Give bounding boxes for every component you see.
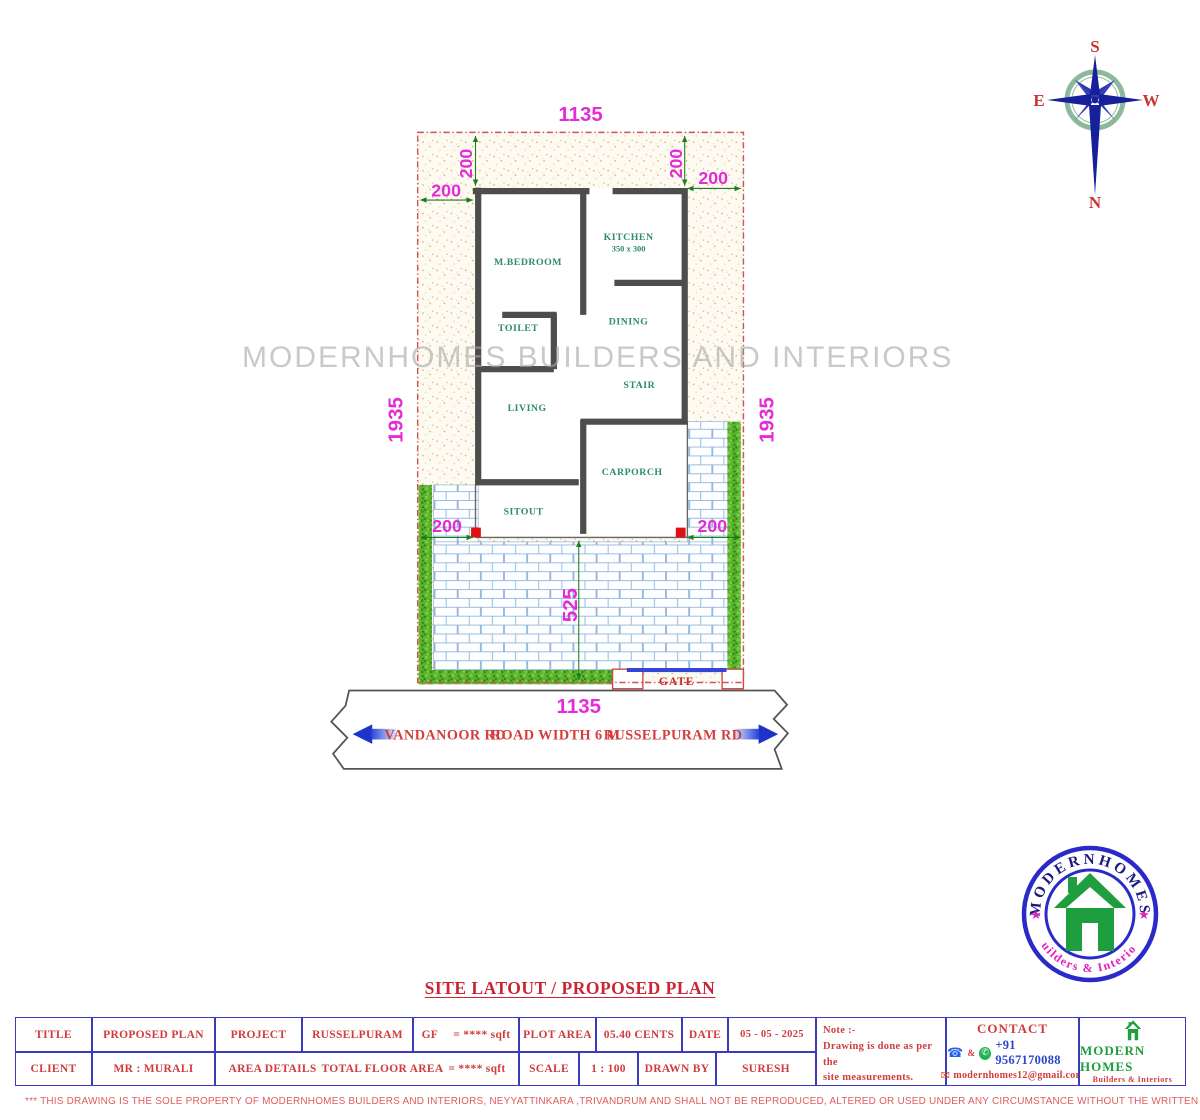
room-label-kitchen-size: 350 x 300	[612, 244, 646, 254]
cell-project-value: RUSSELPURAM	[302, 1017, 413, 1052]
total-floor-value: = **** sqft	[448, 1063, 505, 1075]
compass-north-label: N	[1089, 193, 1102, 210]
dim-setback-bl: 200	[432, 516, 462, 536]
cell-client-value: MR : MURALI	[92, 1052, 215, 1086]
cell-scale-value: 1 : 100	[579, 1052, 638, 1086]
brand-tagline: Builders & Interiors	[1093, 1075, 1173, 1084]
brand-name: MODERN HOMES	[1080, 1043, 1185, 1075]
dim-setback-br: 200	[697, 516, 727, 536]
email-icon: ✉	[941, 1069, 951, 1082]
room-label-sitout: SITOUT	[504, 506, 544, 517]
room-label-mbedroom: M.BEDROOM	[494, 257, 562, 268]
cell-area-details: AREA DETAILS TOTAL FLOOR AREA = **** sqf…	[215, 1052, 519, 1086]
whatsapp-icon: ✆	[979, 1047, 991, 1060]
road-name-left: VANDANOOR RD	[384, 727, 506, 743]
cell-plot-area-label: PLOT AREA	[519, 1017, 596, 1052]
note-line1: Drawing is done as per the	[823, 1039, 939, 1071]
phone-icon: ☎	[947, 1046, 964, 1061]
gate-post-right	[722, 669, 743, 689]
compass-west-label: W	[1143, 91, 1160, 110]
dim-front-depth: 525	[559, 588, 582, 622]
dim-setback-tl-h: 200	[431, 180, 461, 200]
dim-setback-tr-v: 200	[666, 149, 686, 179]
site-plan-drawing: GATE 1135 200 200 200 200 1935 1935 200 …	[300, 95, 870, 865]
cell-title-label: TITLE	[15, 1017, 92, 1052]
road-band: 1135 VANDANOOR RD ROAD WIDTH 6 M RUSSELP…	[331, 691, 788, 769]
cell-date-value: 05 - 05 - 2025	[728, 1017, 816, 1052]
gf-label: GF	[422, 1029, 439, 1041]
cell-title-value: PROPOSED PLAN	[92, 1017, 215, 1052]
dim-top-width: 1135	[558, 103, 602, 126]
drawing-sheet: { "watermark": "MODERNHOMES BUILDERS AND…	[0, 0, 1200, 1120]
compass-rose: S E W N	[1025, 35, 1165, 210]
hedge-right	[727, 422, 740, 672]
contact-heading: CONTACT	[977, 1021, 1048, 1037]
cell-gf-area: GF = **** sqft	[413, 1017, 519, 1052]
dim-right-height: 1935	[756, 397, 779, 443]
cell-project-label: PROJECT	[215, 1017, 302, 1052]
dim-setback-tl-v: 200	[456, 149, 476, 179]
cell-drawn-by-value: SURESH	[716, 1052, 816, 1086]
cell-date-label: DATE	[682, 1017, 728, 1052]
dim-left-height: 1935	[385, 397, 408, 443]
dim-setback-tr-h: 200	[698, 168, 728, 188]
road-dim: 1135	[557, 695, 601, 718]
column-marker-left	[471, 528, 481, 538]
road-width-label: ROAD WIDTH 6 M	[491, 727, 621, 743]
cell-scale-label: SCALE	[519, 1052, 579, 1086]
cell-note: Note :- Drawing is done as per the site …	[816, 1017, 946, 1086]
watermark: MODERNHOMES BUILDERS AND INTERIORS	[242, 341, 953, 375]
brand-house-icon	[1120, 1019, 1146, 1043]
logo-star-right-icon: ★	[1138, 908, 1150, 923]
cell-client-label: CLIENT	[15, 1052, 92, 1086]
amp-separator: &	[968, 1048, 976, 1058]
room-label-living: LIVING	[508, 403, 547, 414]
room-label-dining: DINING	[609, 317, 649, 328]
compass-south-label: S	[1090, 37, 1099, 56]
column-marker-right	[676, 528, 686, 538]
gate-post-left	[613, 669, 643, 689]
sheet-title: SITE LATOUT / PROPOSED PLAN	[300, 978, 840, 999]
cell-plot-area-value: 05.40 CENTS	[596, 1017, 682, 1052]
disclaimer-text: *** THIS DRAWING IS THE SOLE PROPERTY OF…	[25, 1096, 1185, 1107]
room-label-stair: STAIR	[623, 380, 655, 391]
modernhomes-logo-badge: MODERNHOMES Builders & Interiors ★ ★	[1020, 845, 1160, 985]
contact-phone-number[interactable]: +91 9567170088	[995, 1038, 1078, 1068]
road-name-right: RUSSELPURAM RD	[604, 727, 743, 743]
contact-email[interactable]: modernhomes12@gmail.com	[953, 1070, 1084, 1081]
compass-east-label: E	[1033, 91, 1044, 110]
note-heading: Note :-	[823, 1023, 856, 1039]
gf-value: = **** sqft	[453, 1029, 510, 1041]
room-label-kitchen: KITCHEN	[604, 232, 654, 243]
area-details-label: AREA DETAILS	[228, 1063, 316, 1075]
gate-label: GATE	[659, 675, 694, 688]
logo-star-left-icon: ★	[1030, 908, 1042, 923]
note-line2: site measurements.	[823, 1070, 913, 1086]
cell-contact: CONTACT ☎ & ✆ +91 9567170088 ✉ modernhom…	[946, 1017, 1079, 1086]
cell-drawn-by-label: DRAWN BY	[638, 1052, 716, 1086]
cell-brand: MODERN HOMES Builders & Interiors	[1079, 1017, 1186, 1086]
total-floor-label: TOTAL FLOOR AREA	[321, 1063, 443, 1075]
hedge-left	[419, 485, 432, 684]
room-label-toilet: TOILET	[498, 323, 539, 334]
room-label-carporch: CARPORCH	[602, 467, 663, 478]
compass-star	[1047, 55, 1143, 195]
